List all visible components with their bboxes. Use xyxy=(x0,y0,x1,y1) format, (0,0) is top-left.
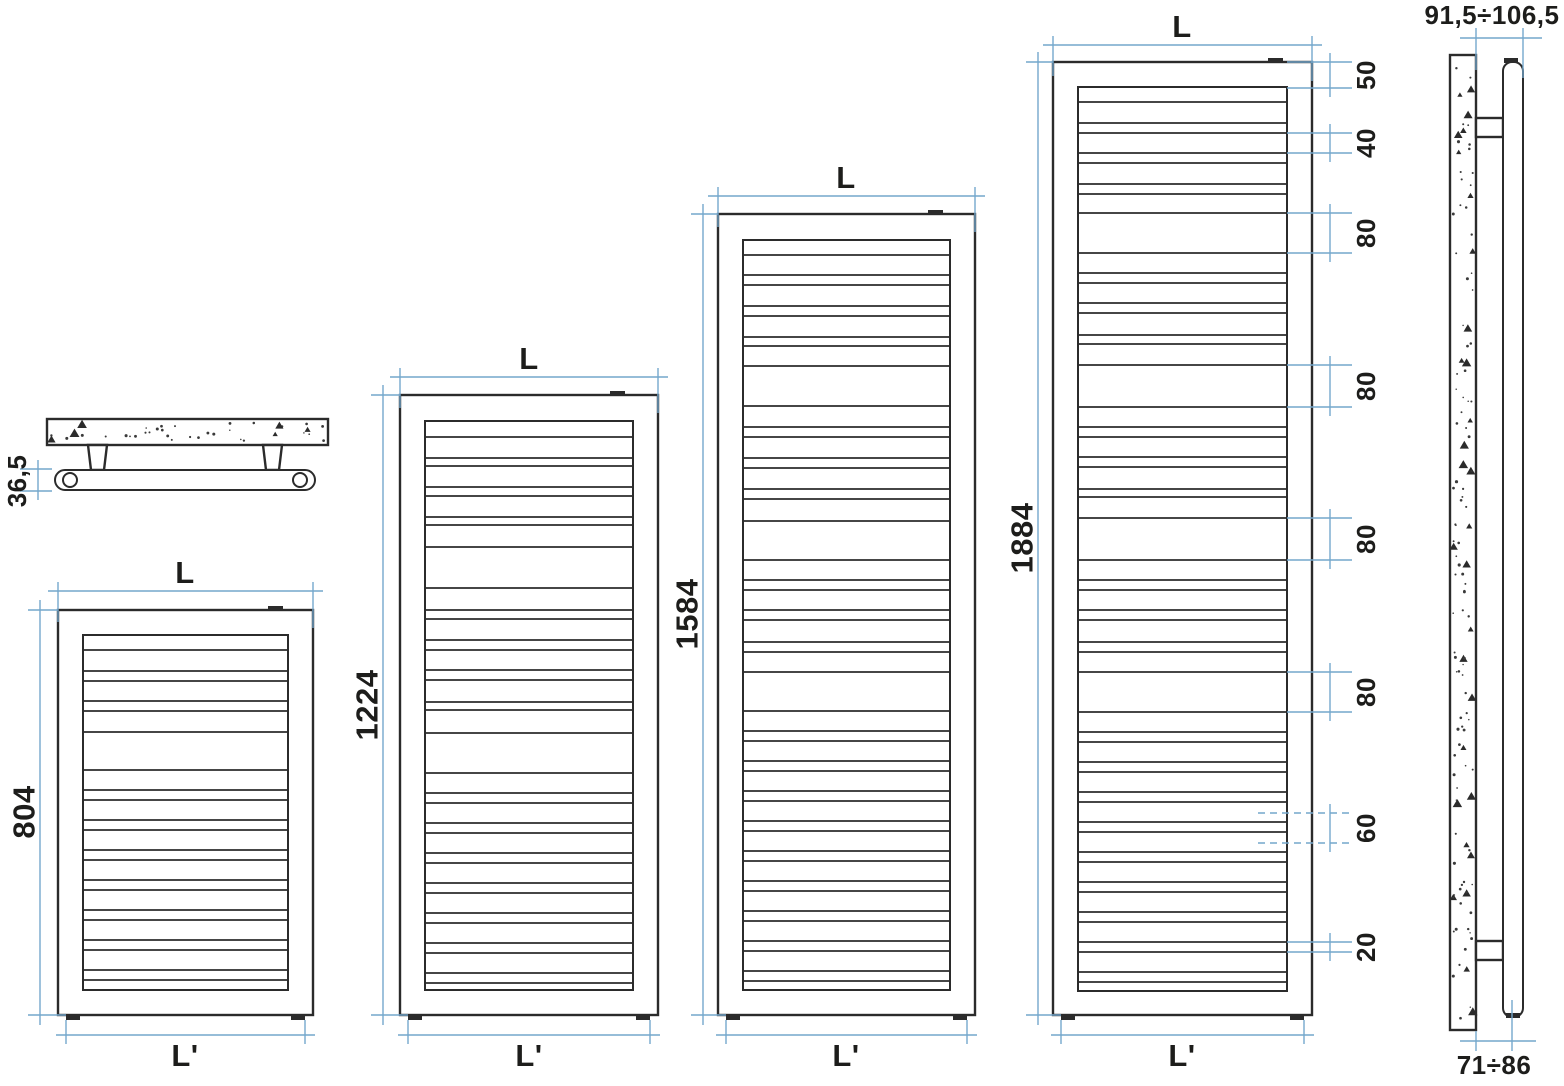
concrete-speck xyxy=(166,434,169,437)
foot-left xyxy=(726,1015,740,1020)
foot-right xyxy=(953,1015,967,1020)
concrete-speck xyxy=(1472,172,1474,174)
concrete-speck xyxy=(1455,555,1457,557)
concrete-speck xyxy=(1456,787,1458,789)
concrete-speck xyxy=(1472,289,1474,291)
concrete-speck xyxy=(1466,345,1469,348)
concrete-speck xyxy=(1452,897,1454,899)
top-view: 36,5 xyxy=(2,419,328,507)
radiator-body-plan xyxy=(55,470,315,490)
pitch-dimension-label: 60 xyxy=(1351,813,1381,843)
concrete-speck xyxy=(1463,590,1466,593)
concrete-speck xyxy=(1464,583,1466,585)
concrete-speck xyxy=(1459,716,1462,719)
concrete-speck xyxy=(171,439,173,441)
concrete-speck xyxy=(1455,833,1457,835)
concrete-speck xyxy=(1455,252,1457,254)
concrete-speck xyxy=(321,425,324,428)
concrete-speck xyxy=(1458,670,1461,673)
pitch-dimension-label: 50 xyxy=(1351,60,1381,90)
concrete-speck xyxy=(1454,573,1456,575)
concrete-speck xyxy=(156,427,159,430)
foot-right xyxy=(1290,1015,1304,1020)
concrete-speck xyxy=(189,436,191,438)
concrete-speck xyxy=(1464,948,1467,951)
foot-right xyxy=(636,1015,650,1020)
concrete-speck xyxy=(81,434,84,437)
mounting-bracket-right xyxy=(263,445,282,470)
concrete-speck xyxy=(1461,496,1463,498)
concrete-speck xyxy=(1460,499,1463,502)
base-width-dimension-label: L' xyxy=(171,1038,198,1073)
concrete-speck xyxy=(1465,891,1467,893)
concrete-speck xyxy=(1462,664,1463,665)
foot-left xyxy=(408,1015,422,1020)
concrete-speck xyxy=(1461,411,1463,413)
foot-left xyxy=(66,1015,80,1020)
concrete-speck xyxy=(161,429,164,432)
concrete-speck xyxy=(1468,148,1471,151)
concrete-speck xyxy=(1459,204,1461,206)
radiator-dimension-drawing: 36,5 L 804 L' L 1224 xyxy=(0,0,1564,1086)
concrete-speck xyxy=(1452,612,1454,614)
concrete-speck xyxy=(1467,401,1469,403)
concrete-speck xyxy=(229,422,232,425)
concrete-speck xyxy=(1462,609,1464,611)
concrete-speck xyxy=(1468,719,1470,721)
concrete-speck xyxy=(174,425,176,427)
concrete-speck xyxy=(1452,213,1455,216)
concrete-speck xyxy=(1467,928,1469,930)
concrete-speck xyxy=(1454,523,1456,525)
concrete-speck xyxy=(1470,937,1473,940)
concrete-speck xyxy=(1463,729,1466,732)
concrete-speck xyxy=(212,433,215,436)
concrete-speck xyxy=(1461,725,1463,727)
concrete-speck xyxy=(105,435,107,437)
concrete-speck xyxy=(134,435,137,438)
concrete-speck xyxy=(1455,389,1456,390)
width-dimension-label: L xyxy=(1172,9,1191,44)
width-dimension-label: L xyxy=(175,555,194,590)
concrete-speck xyxy=(1459,888,1462,891)
concrete-speck xyxy=(1455,67,1457,69)
concrete-speck xyxy=(1456,728,1459,731)
concrete-speck xyxy=(1458,964,1460,966)
concrete-speck xyxy=(229,429,230,430)
radiator-panel xyxy=(425,421,633,990)
concrete-speck xyxy=(160,425,163,428)
concrete-speck xyxy=(1459,1017,1462,1020)
concrete-speck xyxy=(243,439,245,441)
concrete-speck xyxy=(1469,77,1471,79)
concrete-speck xyxy=(1466,712,1468,714)
concrete-speck xyxy=(1462,674,1464,676)
concrete-speck xyxy=(206,432,209,435)
wall-distance-bottom-label: 71÷86 xyxy=(1457,1050,1532,1080)
concrete-speck xyxy=(1461,178,1463,180)
concrete-speck xyxy=(1471,272,1473,274)
pitch-dimension-label: 80 xyxy=(1351,371,1381,401)
concrete-speck xyxy=(308,433,310,435)
concrete-speck xyxy=(1462,325,1464,327)
air-vent-mark xyxy=(610,391,625,396)
concrete-speck xyxy=(1468,849,1470,851)
concrete-speck xyxy=(148,431,150,433)
concrete-speck xyxy=(1465,506,1467,508)
concrete-speck xyxy=(1454,656,1457,659)
concrete-speck xyxy=(1453,754,1456,757)
concrete-speck xyxy=(1454,894,1455,895)
concrete-speck xyxy=(1469,932,1470,933)
concrete-speck xyxy=(1454,651,1456,653)
radiator-1584-front-view: L 1584 L' xyxy=(670,160,986,1073)
air-vent-mark xyxy=(928,210,943,215)
concrete-speck xyxy=(1470,400,1472,402)
concrete-speck xyxy=(1465,427,1467,429)
concrete-speck xyxy=(129,436,131,438)
concrete-speck xyxy=(50,434,52,436)
mounting-bracket-bottom xyxy=(1476,941,1503,960)
concrete-speck xyxy=(1453,862,1456,865)
concrete-speck xyxy=(1462,488,1464,490)
concrete-speck xyxy=(1453,931,1455,933)
technical-drawing-sheet: 36,5 L 804 L' L 1224 xyxy=(0,0,1564,1086)
concrete-speck xyxy=(1472,769,1474,771)
concrete-speck xyxy=(1458,563,1461,566)
concrete-speck xyxy=(305,423,308,426)
height-dimension-label: 804 xyxy=(7,785,42,838)
side-view: 91,5÷106,5 71÷86 xyxy=(1425,0,1560,1080)
concrete-speck xyxy=(1465,692,1467,694)
concrete-speck xyxy=(1470,342,1473,345)
radiator-804-front-view: L 804 L' xyxy=(7,555,324,1073)
height-dimension-label: 1584 xyxy=(670,578,705,649)
foot-right xyxy=(291,1015,305,1020)
collector-tube-left xyxy=(63,473,77,487)
concrete-speck xyxy=(1462,397,1464,399)
width-dimension-label: L xyxy=(519,341,538,376)
pitch-dimension-label: 80 xyxy=(1351,677,1381,707)
wall-section xyxy=(47,419,328,445)
base-width-dimension-label: L' xyxy=(1168,1038,1195,1073)
concrete-speck xyxy=(1453,773,1456,776)
pitch-dimension-label: 20 xyxy=(1351,932,1381,962)
air-vent-mark xyxy=(1504,58,1518,63)
concrete-speck xyxy=(1463,657,1466,660)
concrete-speck xyxy=(303,432,305,434)
concrete-speck xyxy=(1471,233,1473,235)
concrete-speck xyxy=(1452,975,1455,978)
concrete-speck xyxy=(125,434,128,437)
concrete-speck xyxy=(1465,765,1467,767)
concrete-speck xyxy=(1456,422,1459,425)
mounting-bracket-top xyxy=(1476,118,1503,137)
concrete-speck xyxy=(1467,124,1469,126)
concrete-speck xyxy=(240,439,242,441)
radiator-1884-front-view: L 1884 L' xyxy=(1005,9,1323,1073)
concrete-speck xyxy=(1471,884,1473,886)
concrete-speck xyxy=(1463,881,1465,883)
concrete-speck xyxy=(1470,1006,1471,1007)
concrete-speck xyxy=(1457,140,1460,143)
pitch-dimension-label: 80 xyxy=(1351,524,1381,554)
concrete-speck xyxy=(1470,184,1472,186)
concrete-speck xyxy=(1462,123,1464,125)
collector-tube-right xyxy=(293,473,307,487)
concrete-speck xyxy=(197,436,200,439)
wall-distance-top-label: 91,5÷106,5 xyxy=(1425,0,1560,30)
concrete-speck xyxy=(1459,902,1462,905)
concrete-speck xyxy=(1458,743,1461,746)
concrete-speck xyxy=(1471,470,1473,472)
concrete-speck xyxy=(253,422,256,425)
depth-dimension-label: 36,5 xyxy=(2,455,32,508)
concrete-speck xyxy=(1468,143,1471,146)
radiator-panel xyxy=(1078,87,1287,991)
concrete-speck xyxy=(1456,671,1458,673)
height-dimension-label: 1884 xyxy=(1005,502,1040,573)
concrete-speck xyxy=(145,427,147,429)
height-dimension-label: 1224 xyxy=(350,669,385,740)
concrete-speck xyxy=(65,437,68,440)
base-width-dimension-label: L' xyxy=(515,1038,542,1073)
radiator-panel xyxy=(743,240,950,990)
drain-plug-mark xyxy=(1506,1013,1520,1018)
concrete-speck xyxy=(1470,911,1473,914)
concrete-speck xyxy=(1465,206,1468,209)
concrete-speck xyxy=(1455,928,1458,931)
concrete-speck xyxy=(1461,573,1464,576)
concrete-speck xyxy=(1452,487,1455,490)
concrete-speck xyxy=(1453,540,1455,542)
pitch-dimension-label: 80 xyxy=(1351,218,1381,248)
air-vent-mark xyxy=(1268,58,1283,63)
concrete-speck xyxy=(144,432,146,434)
concrete-speck xyxy=(322,439,325,442)
concrete-speck xyxy=(1457,542,1460,545)
width-dimension-label: L xyxy=(836,160,855,195)
concrete-speck xyxy=(1460,171,1462,173)
concrete-speck xyxy=(1456,373,1458,375)
radiator-1224-front-view: L 1224 L' xyxy=(350,341,669,1073)
radiator-panel xyxy=(83,635,288,990)
concrete-speck xyxy=(1468,435,1471,438)
concrete-speck xyxy=(1464,369,1467,372)
concrete-speck xyxy=(1466,277,1469,280)
mounting-bracket-left xyxy=(88,445,107,470)
base-width-dimension-label: L' xyxy=(832,1038,859,1073)
radiator-side-profile xyxy=(1503,62,1523,1017)
concrete-speck xyxy=(1455,480,1458,483)
concrete-speck xyxy=(1467,615,1469,617)
concrete-speck xyxy=(1461,884,1463,886)
pitch-dimension-label: 40 xyxy=(1351,128,1381,158)
foot-left xyxy=(1061,1015,1075,1020)
air-vent-mark xyxy=(268,606,283,611)
